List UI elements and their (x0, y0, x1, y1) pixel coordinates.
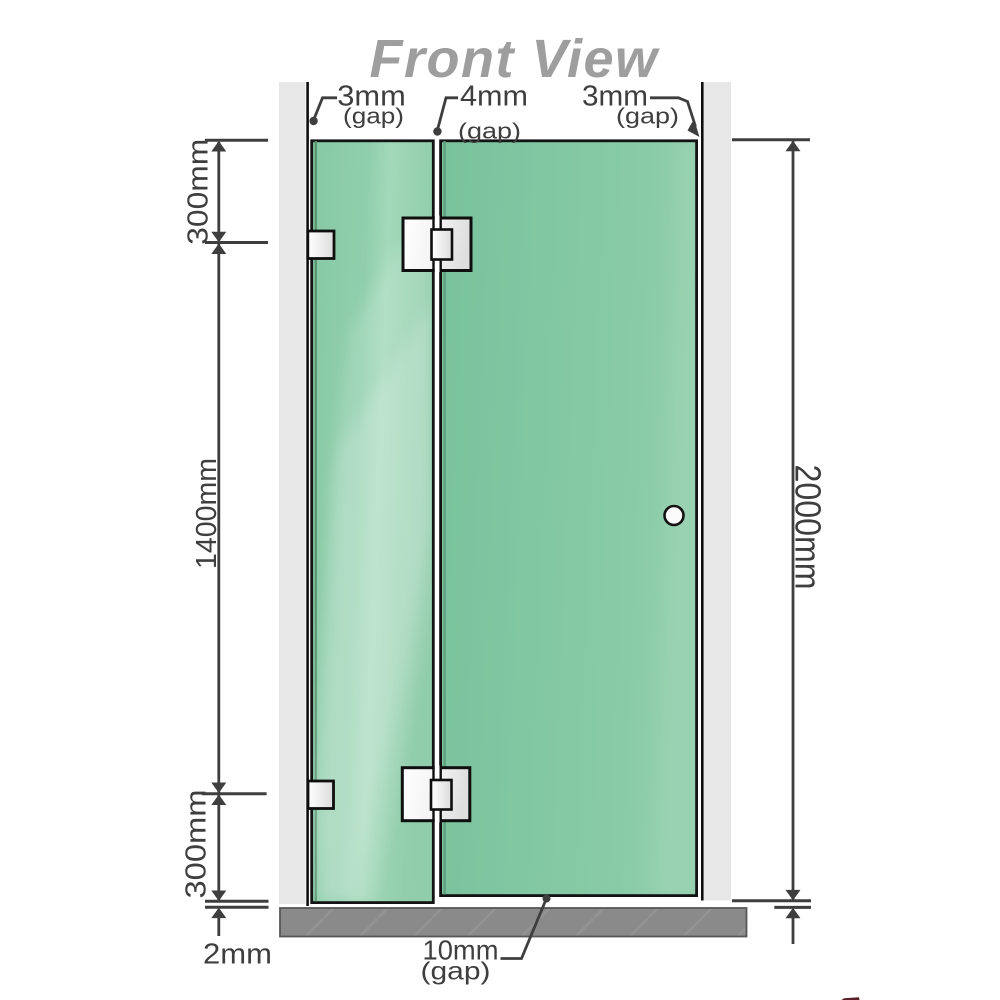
svg-text:(gap): (gap) (343, 104, 404, 129)
svg-text:4mm: 4mm (460, 81, 528, 113)
svg-text:(gap): (gap) (421, 958, 491, 986)
svg-text:(gap): (gap) (616, 104, 679, 129)
svg-text:300mm: 300mm (181, 790, 213, 899)
svg-text:(gap): (gap) (458, 119, 521, 144)
svg-text:2mm: 2mm (203, 939, 272, 971)
svg-text:1400mm: 1400mm (191, 458, 223, 569)
svg-text:2000mm: 2000mm (788, 465, 829, 590)
svg-text:300mm: 300mm (183, 139, 215, 245)
